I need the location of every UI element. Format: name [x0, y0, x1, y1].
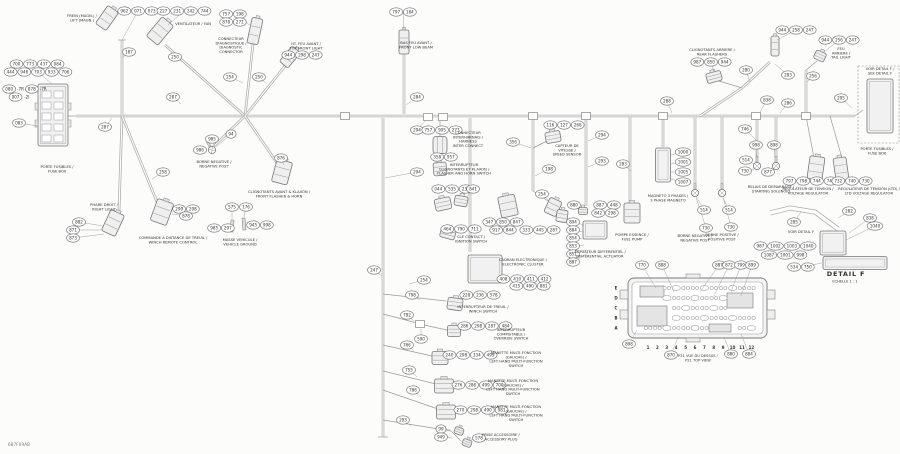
part-callout-1001[interactable]: 1001: [675, 158, 691, 166]
svg-text:1040: 1040: [870, 224, 881, 229]
svg-text:757: 757: [424, 128, 432, 133]
part-callout-888[interactable]: 888: [656, 261, 669, 269]
svg-text:TAIL LIGHT: TAIL LIGHT: [830, 56, 852, 60]
svg-text:298: 298: [189, 207, 197, 212]
part-callout-575[interactable]: 575: [226, 203, 239, 211]
svg-text:SPEED SENSOR: SPEED SENSOR: [553, 153, 582, 157]
svg-text:871: 871: [69, 228, 77, 233]
svg-text:287: 287: [101, 125, 109, 130]
part-callout-464-790-711[interactable]: 464790711: [441, 225, 481, 233]
interharness-connector: [433, 137, 447, 154]
svg-text:945: 945: [249, 223, 257, 228]
component-label: VOIR DETAIL F /SEE DETAIL F: [866, 67, 895, 75]
part-callout-878[interactable]: 878: [180, 212, 193, 220]
svg-text:FUSE BOX: FUSE BOX: [48, 169, 67, 173]
part-callout-998[interactable]: 998: [750, 141, 763, 149]
part-callout-280[interactable]: 280: [740, 66, 753, 74]
component-label: ACTUATEUR DIFFERENTIEL /DIFFERENTIAL ACT…: [574, 250, 626, 258]
svg-text:944: 944: [778, 28, 786, 33]
branch-wire: [716, 80, 742, 88]
part-callout-333-445-287[interactable]: 333445287: [520, 226, 560, 234]
svg-text:844: 844: [506, 228, 514, 233]
svg-text:286: 286: [461, 324, 469, 329]
part-callout-240-298-334-499[interactable]: 240298334499: [443, 351, 497, 359]
part-callout-198[interactable]: 198: [543, 165, 556, 173]
branch-wire: [855, 110, 863, 116]
svg-text:236: 236: [476, 293, 484, 298]
svg-text:575: 575: [228, 205, 236, 210]
part-callout-187[interactable]: 187: [123, 48, 136, 56]
part-callout-766[interactable]: 766: [401, 341, 414, 349]
svg-text:985: 985: [208, 137, 216, 142]
svg-text:412: 412: [541, 277, 549, 282]
harness-wire: [770, 208, 838, 229]
svg-text:744: 744: [813, 179, 821, 184]
svg-text:REAR FLASHERS: REAR FLASHERS: [697, 52, 728, 56]
part-callout-1000[interactable]: 1000: [675, 148, 691, 156]
part-callout-877[interactable]: 877: [762, 168, 775, 176]
sheet-code: 687F09AB: [8, 442, 30, 447]
part-callout-254[interactable]: 254: [224, 73, 237, 81]
detail-f-col-number: 12: [749, 345, 755, 350]
svg-text:247: 247: [806, 28, 814, 33]
part-callout-838[interactable]: 838: [864, 214, 877, 222]
svg-text:514: 514: [742, 158, 750, 163]
component-label: VOIR DETAIL F: [788, 230, 814, 234]
part-callout-258[interactable]: 258: [157, 168, 170, 176]
svg-text:VEHICLE GROUND: VEHICLE GROUND: [223, 242, 257, 246]
part-callout-1087-1001-998[interactable]: 10871001998: [761, 251, 807, 259]
svg-text:198: 198: [545, 167, 553, 172]
svg-text:3 PHASE MAGNETO: 3 PHASE MAGNETO: [650, 198, 686, 202]
svg-text:445: 445: [536, 228, 544, 233]
svg-text:256: 256: [835, 38, 843, 43]
svg-text:894: 894: [569, 220, 577, 225]
part-callout-841[interactable]: 841: [467, 185, 480, 193]
part-callout-1005[interactable]: 1005: [675, 168, 691, 176]
svg-text:873: 873: [69, 236, 77, 241]
component-label: PRISE ACCESSOIRE /ACCESSORY PLUG: [482, 433, 520, 441]
component-label: PHARE DROIT /RIGHT LIGHT: [90, 203, 118, 211]
svg-text:842: 842: [594, 211, 602, 216]
harness-junction: [416, 321, 425, 328]
svg-text:872: 872: [725, 263, 733, 268]
part-callout-880[interactable]: 880: [568, 201, 581, 209]
part-callout-898[interactable]: 898: [768, 141, 781, 149]
part-callout-284[interactable]: 284: [411, 93, 424, 101]
part-callout-700-773-437-084[interactable]: 700773437084: [10, 60, 64, 68]
part-callout-283[interactable]: 283: [782, 71, 795, 79]
detail-f-col-number: 1: [647, 345, 650, 350]
part-callout-282[interactable]: 282: [843, 207, 856, 215]
svg-text:987: 987: [756, 244, 764, 249]
svg-text:254: 254: [538, 192, 546, 197]
component-label: BORNE POSITIVE /POSITIVE POST: [705, 233, 739, 241]
svg-text:514: 514: [725, 208, 733, 213]
component-label: VENTILATEUR / FAN: [175, 22, 211, 26]
part-callout-294[interactable]: 294: [411, 126, 424, 134]
svg-text:250: 250: [255, 75, 263, 80]
svg-text:744: 744: [201, 9, 209, 14]
right-light-connector: [101, 207, 125, 236]
part-callout-842-298[interactable]: 842298: [592, 209, 619, 217]
svg-text:347: 347: [485, 220, 493, 225]
svg-text:1000: 1000: [678, 150, 689, 155]
svg-text:1002: 1002: [770, 244, 781, 249]
svg-text:IGNITION SWITCH: IGNITION SWITCH: [455, 239, 488, 243]
part-callout-176[interactable]: 176: [240, 203, 253, 211]
part-callout-838[interactable]: 838: [761, 96, 774, 104]
svg-text:730: 730: [702, 226, 710, 231]
detail-f-col-number: 9: [722, 345, 725, 350]
component-label: MASSE VEHICULE /VEHICLE GROUND: [223, 238, 258, 246]
component-label: FEUARRIERE /TAIL LIGHT: [830, 47, 852, 60]
svg-text:FLASHER AND HORN SWITCH: FLASHER AND HORN SWITCH: [437, 172, 491, 176]
part-callout-1040[interactable]: 1040: [867, 222, 883, 230]
svg-text:071: 071: [134, 9, 142, 14]
component-label: MAGNETO 3 PHASES /3 PHASE MAGNETO: [648, 194, 689, 202]
part-callout-985[interactable]: 985: [206, 135, 219, 143]
svg-text:853: 853: [569, 244, 577, 249]
ground-post: [242, 218, 246, 230]
detail-f-col-number: 2: [656, 345, 659, 350]
svg-text:298: 298: [298, 53, 306, 58]
svg-text:94: 94: [228, 132, 234, 137]
svg-text:730: 730: [727, 225, 735, 230]
part-callout-917-844[interactable]: 917844: [490, 226, 517, 234]
svg-text:1001: 1001: [780, 253, 791, 258]
part-callout-293[interactable]: 293: [596, 157, 609, 165]
solenoid-ring: [753, 157, 760, 170]
part-callout-94[interactable]: 94: [226, 130, 236, 138]
component-label: MANETTE MULTI-FONCTION(GAUCHE) /LEFT HAN…: [489, 405, 542, 422]
svg-text:746: 746: [741, 127, 749, 132]
switch-connector: [433, 194, 452, 212]
diagnostic-connector: [247, 15, 264, 45]
part-callout-415-490-881[interactable]: 415490881: [510, 282, 550, 290]
svg-text:254: 254: [420, 278, 428, 283]
part-callout-254[interactable]: 254: [418, 276, 431, 284]
part-callout-285[interactable]: 285: [788, 218, 801, 226]
svg-text:933: 933: [48, 70, 56, 75]
detail-f-col-number: 8: [712, 345, 715, 350]
svg-text:1007: 1007: [678, 180, 689, 185]
svg-text:DIFFERENTIAL ACTUATOR: DIFFERENTIAL ACTUATOR: [576, 254, 624, 258]
svg-text:962: 962: [120, 9, 128, 14]
svg-text:578: 578: [490, 293, 498, 298]
part-callout-730[interactable]: 730: [700, 224, 713, 232]
svg-text:198: 198: [236, 12, 244, 17]
svg-text:1005: 1005: [678, 170, 689, 175]
svg-text:1001: 1001: [678, 160, 689, 165]
part-callout-514[interactable]: 514: [740, 156, 753, 164]
part-callout-884[interactable]: 884: [567, 226, 580, 234]
part-callout-853[interactable]: 853: [567, 242, 580, 250]
magneto-connector: [656, 148, 671, 182]
component-label: REGULATEUR DE TENSION (LTD) /LTD VOLTAGE…: [838, 187, 900, 195]
detail-f-row-letter: C: [615, 306, 618, 311]
part-callout-876[interactable]: 876: [275, 154, 288, 162]
fuse-box-top-view: [823, 257, 887, 270]
svg-text:254: 254: [226, 75, 234, 80]
detail-f-col-number: 4: [675, 345, 678, 350]
svg-text:294: 294: [413, 128, 421, 133]
fuel-pump-connector: [624, 201, 640, 224]
part-callout-250[interactable]: 250: [169, 53, 182, 61]
part-callout-294[interactable]: 294: [596, 131, 609, 139]
part-callout-854[interactable]: 854: [567, 234, 580, 242]
voltage-regulator-connector: [807, 153, 825, 180]
svg-text:LTD VOLTAGE REGULATOR: LTD VOLTAGE REGULATOR: [845, 191, 893, 195]
svg-text:LIFT (MAGN.): LIFT (MAGN.): [70, 18, 94, 22]
svg-text:957: 957: [447, 155, 455, 160]
svg-text:271: 271: [236, 20, 244, 25]
component-label: MANETTE MULTI-FONCTION(GAUCHE) /LEFT HAN…: [489, 351, 542, 368]
svg-text:083: 083: [15, 121, 23, 126]
harness-junction: [802, 113, 811, 120]
svg-text:706: 706: [61, 70, 69, 75]
svg-text:841: 841: [469, 187, 477, 192]
svg-text:286: 286: [468, 383, 476, 388]
harness-junction: [529, 113, 538, 120]
svg-text:-7R: -7R: [17, 87, 24, 92]
svg-text:590: 590: [417, 337, 425, 342]
branch-wire: [533, 141, 547, 148]
svg-text:917: 917: [492, 228, 500, 233]
part-callout-590[interactable]: 590: [415, 335, 428, 343]
svg-text:838: 838: [866, 216, 874, 221]
svg-text:998: 998: [263, 223, 271, 228]
svg-text:298: 298: [470, 408, 478, 413]
harness-junction: [752, 113, 761, 120]
svg-text:INTER CONNECT: INTER CONNECT: [453, 144, 484, 148]
svg-text:838: 838: [763, 98, 771, 103]
svg-text:ELECTRONIC CLUSTER: ELECTRONIC CLUSTER: [502, 262, 544, 266]
svg-text:287: 287: [169, 95, 177, 100]
svg-text:887: 887: [569, 260, 577, 265]
svg-text:298: 298: [608, 211, 616, 216]
part-callout-872[interactable]: 872: [723, 261, 736, 269]
svg-text:944: 944: [284, 53, 292, 58]
svg-text:258: 258: [792, 28, 800, 33]
part-callout-899[interactable]: 899: [746, 261, 759, 269]
svg-text:797: 797: [786, 179, 794, 184]
svg-text:757: 757: [222, 12, 230, 17]
svg-text:176: 176: [242, 205, 250, 210]
part-callout-356[interactable]: 356: [507, 138, 520, 146]
branch-wire: [830, 116, 842, 158]
svg-text:773: 773: [26, 62, 34, 67]
svg-text:444: 444: [7, 70, 15, 75]
svg-text:RIGHT LIGHT: RIGHT LIGHT: [92, 207, 116, 211]
part-callout-746[interactable]: 746: [739, 125, 752, 133]
svg-text:VOIR DETAIL F: VOIR DETAIL F: [788, 230, 814, 234]
fuse-box-right: [867, 79, 893, 133]
negative-post-ring: [691, 184, 698, 197]
part-callout-986[interactable]: 986: [194, 146, 207, 154]
part-callout-880[interactable]: 880: [725, 350, 738, 358]
part-callout-228-236-578[interactable]: 228236578: [460, 291, 500, 299]
component-label: BAS FEU AVANT /FRONT LOW BEAM: [399, 41, 433, 49]
svg-text:870: 870: [667, 353, 675, 358]
svg-text:282: 282: [845, 209, 853, 214]
svg-text:FRONT LOW BEAM: FRONT LOW BEAM: [399, 45, 433, 49]
component-label: PORTE FUSIBLES /FUSE BOX: [40, 165, 74, 173]
detail-f-caption: P21 VUE DU DESSUS /: [678, 354, 719, 358]
part-callout-798[interactable]: 798: [406, 291, 419, 299]
part-callout-871[interactable]: 871: [67, 226, 80, 234]
part-callout-878-271[interactable]: 878271: [220, 18, 247, 26]
part-callout-287[interactable]: 287: [167, 93, 180, 101]
part-callout-730[interactable]: 730: [725, 223, 738, 231]
svg-text:799: 799: [737, 263, 745, 268]
part-callout-786[interactable]: 786: [407, 386, 420, 394]
part-callout-962-071-073[interactable]: 962071073: [118, 7, 158, 15]
part-callout-887-448[interactable]: 887448: [594, 201, 621, 209]
svg-text:297: 297: [224, 226, 232, 231]
part-callout-083[interactable]: 083: [13, 119, 26, 127]
svg-text:231: 231: [173, 9, 181, 14]
svg-text:POSITIVE POST: POSITIVE POST: [708, 237, 736, 241]
svg-text:287: 287: [550, 228, 558, 233]
part-callout-730[interactable]: 730: [739, 167, 752, 175]
part-callout-944-298-247[interactable]: 944298247: [282, 51, 322, 59]
svg-text:888: 888: [658, 263, 666, 268]
harness-junction: [439, 114, 448, 121]
svg-text:730: 730: [741, 169, 749, 174]
svg-text:288: 288: [663, 99, 671, 104]
svg-text:270: 270: [457, 408, 465, 413]
svg-text:410: 410: [513, 277, 521, 282]
svg-text:044: 044: [434, 187, 442, 192]
svg-text:411: 411: [527, 277, 535, 282]
detail-f-row-letter: B: [614, 316, 617, 321]
part-callout-283[interactable]: 283: [617, 160, 630, 168]
svg-text:750: 750: [804, 265, 812, 270]
svg-text:732: 732: [834, 179, 842, 184]
svg-text:286: 286: [784, 101, 792, 106]
svg-text:258: 258: [159, 170, 167, 175]
component-label: CLIGNOTANTS ARRIERE /REAR FLASHERS: [689, 48, 735, 56]
svg-text:740: 740: [848, 179, 856, 184]
part-callout-944-256-247[interactable]: 944256247: [819, 36, 859, 44]
part-callout-755[interactable]: 755: [403, 366, 416, 374]
solenoid-ring: [772, 157, 779, 170]
part-callout-894[interactable]: 894: [567, 218, 580, 226]
svg-text:899: 899: [748, 263, 756, 268]
part-callout-288[interactable]: 288: [661, 97, 674, 105]
part-callout-514[interactable]: 514: [723, 206, 736, 214]
component-label: PORTE FUSIBLES /FUSE BOX: [860, 147, 894, 155]
svg-text:ACCESSORY PLUG: ACCESSORY PLUG: [485, 437, 518, 441]
part-callout-358-957[interactable]: 358957: [431, 153, 458, 161]
part-callout-870[interactable]: 870: [665, 351, 678, 359]
detail-f-col-number: 3: [665, 345, 668, 350]
part-callout-99[interactable]: 99: [436, 425, 446, 433]
part-callout-347-850-847[interactable]: 347850847: [483, 218, 523, 226]
part-callout-1007[interactable]: 1007: [675, 178, 691, 186]
part-callout-887[interactable]: 887: [567, 258, 580, 266]
svg-text:490: 490: [526, 284, 534, 289]
part-callout-254[interactable]: 254: [536, 190, 549, 198]
part-callout-987-850-944[interactable]: 987850944: [691, 58, 731, 66]
part-callout-770[interactable]: 770: [636, 261, 649, 269]
svg-text:985: 985: [210, 226, 218, 231]
svg-text:755: 755: [405, 368, 413, 373]
part-callout-732-740-730[interactable]: 732740730: [832, 177, 872, 185]
part-callout-873[interactable]: 873: [67, 234, 80, 242]
svg-text:880: 880: [570, 203, 578, 208]
harness-wire: [122, 116, 157, 202]
part-callout-444-946-703-933-706[interactable]: 444946703933706: [4, 68, 72, 76]
svg-text:116: 116: [546, 123, 554, 128]
part-callout-882[interactable]: 882: [73, 218, 86, 226]
part-callout-514[interactable]: 514: [698, 206, 711, 214]
component-label: CONNECTEURDIAGNOSTIQUE /DIAGNOSTICCONNEC…: [216, 37, 248, 54]
detail-f-caption: P21 TOP VIEW: [685, 358, 711, 362]
part-callout-782[interactable]: 782: [401, 311, 414, 319]
svg-text:298: 298: [474, 324, 482, 329]
part-callout-286[interactable]: 286: [782, 99, 795, 107]
fan-connector: [146, 15, 175, 46]
svg-text:283: 283: [619, 162, 627, 167]
detail-f-panel: EDCBA123456789101112DETAIL FECHELLE 1 : …: [614, 270, 865, 362]
svg-text:FRONT FLASHER & HORN: FRONT FLASHER & HORN: [256, 194, 303, 198]
part-callout-294[interactable]: 294: [411, 168, 424, 176]
svg-text:227: 227: [160, 9, 168, 14]
speed-sensor-connector: [544, 128, 561, 144]
svg-text:247: 247: [849, 38, 857, 43]
svg-text:356: 356: [509, 140, 517, 145]
positive-post-ring: [718, 184, 725, 197]
part-callout-987-1002-1003-1040[interactable]: 987100210031040: [754, 242, 816, 250]
svg-text:268: 268: [574, 123, 582, 128]
svg-text:944: 944: [721, 60, 729, 65]
part-callout-116-127-268[interactable]: 116127268: [544, 121, 584, 129]
part-callout-944-258-247[interactable]: 944258247: [776, 26, 816, 34]
part-callout-256[interactable]: 256: [807, 72, 820, 80]
svg-text:884: 884: [569, 228, 577, 233]
part-callout-884[interactable]: 884: [743, 350, 756, 358]
svg-text:876: 876: [277, 156, 285, 161]
part-callout-247[interactable]: 247: [368, 266, 381, 274]
part-callout-007--2I[interactable]: 007-2I: [9, 93, 29, 101]
component-label: CLE CONTACT /IGNITION SWITCH: [455, 235, 488, 243]
svg-text:295: 295: [837, 96, 845, 101]
svg-text:448: 448: [610, 203, 618, 208]
svg-text:OVERRIDE SWITCH: OVERRIDE SWITCH: [494, 337, 529, 341]
part-callout-949[interactable]: 949: [435, 433, 448, 441]
svg-text:SEE DETAIL F: SEE DETAIL F: [868, 71, 892, 75]
svg-text:280: 280: [742, 68, 750, 73]
part-callout-295[interactable]: 295: [835, 94, 848, 102]
svg-text:127: 127: [560, 123, 568, 128]
svg-text:711: 711: [471, 227, 479, 232]
svg-text:256: 256: [809, 74, 817, 79]
svg-text:283: 283: [784, 73, 792, 78]
svg-text:SWITCH: SWITCH: [509, 364, 524, 368]
part-callout-293[interactable]: 293: [397, 416, 410, 424]
part-callout-287[interactable]: 287: [99, 123, 112, 131]
tail-light-connector: [813, 47, 828, 62]
part-callout-898[interactable]: 898: [623, 340, 636, 348]
svg-text:408: 408: [500, 277, 508, 282]
winch-plug-connector: [95, 3, 120, 31]
part-callout-250[interactable]: 250: [253, 73, 266, 81]
part-callout-044-535-237[interactable]: 044535237: [432, 185, 472, 193]
svg-text:766: 766: [403, 343, 411, 348]
component-label: HT. FEU AVANT /TOP FRONT LIGHT: [288, 42, 323, 50]
